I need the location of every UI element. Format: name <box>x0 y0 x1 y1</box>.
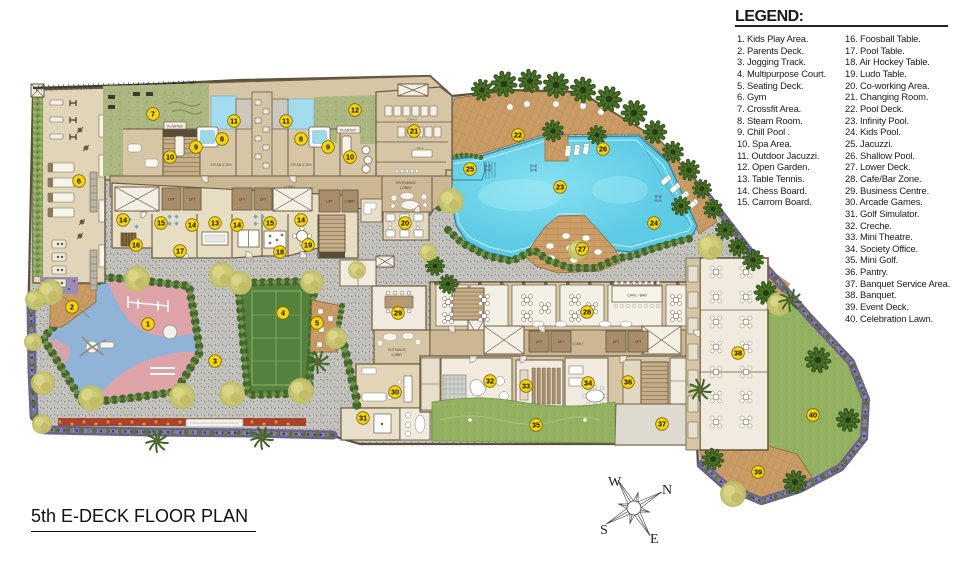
svg-text:15: 15 <box>266 219 274 228</box>
svg-text:17: 17 <box>176 247 184 256</box>
svg-text:11: 11 <box>282 117 290 126</box>
svg-text:34: 34 <box>584 379 593 388</box>
svg-text:18: 18 <box>276 248 284 257</box>
svg-text:ENTRANCE: ENTRANCE <box>388 348 406 352</box>
svg-text:3: 3 <box>213 357 217 366</box>
svg-text:11: 11 <box>230 117 238 126</box>
svg-text:LIFT: LIFT <box>635 340 642 344</box>
svg-text:32: 32 <box>486 377 494 386</box>
svg-text:LOBBY: LOBBY <box>400 186 413 190</box>
svg-text:22: 22 <box>514 131 522 140</box>
svg-text:14: 14 <box>119 216 128 225</box>
svg-text:LIFT: LIFT <box>239 198 246 202</box>
svg-text:26: 26 <box>599 145 607 154</box>
svg-text:STEAM & SPA: STEAM & SPA <box>210 163 232 167</box>
svg-text:S: S <box>600 523 608 538</box>
svg-text:10: 10 <box>166 153 174 162</box>
svg-text:LOBBY: LOBBY <box>572 342 584 346</box>
svg-text:LIFT: LIFT <box>613 340 620 344</box>
svg-text:FEMALE: FEMALE <box>407 118 418 122</box>
svg-text:W: W <box>608 475 622 490</box>
svg-text:CAFE / BAR: CAFE / BAR <box>627 294 647 298</box>
svg-text:15: 15 <box>157 219 165 228</box>
svg-text:31: 31 <box>359 414 367 423</box>
svg-text:27: 27 <box>578 245 586 254</box>
svg-text:38: 38 <box>734 349 742 358</box>
svg-text:E: E <box>650 532 659 547</box>
svg-text:LOBBY: LOBBY <box>345 200 357 204</box>
svg-text:2: 2 <box>70 303 74 312</box>
svg-text:37: 37 <box>658 420 666 429</box>
svg-text:8: 8 <box>299 135 303 144</box>
svg-text:ENTRANCE: ENTRANCE <box>396 181 416 185</box>
svg-text:35: 35 <box>532 421 540 430</box>
svg-text:8: 8 <box>220 135 224 144</box>
svg-text:28: 28 <box>583 308 591 317</box>
svg-text:14: 14 <box>297 216 306 225</box>
svg-text:STEAM & SPA: STEAM & SPA <box>290 163 312 167</box>
svg-text:1: 1 <box>146 320 150 329</box>
svg-text:36: 36 <box>624 378 632 387</box>
svg-text:30: 30 <box>391 388 399 397</box>
svg-text:40: 40 <box>809 411 817 420</box>
svg-text:19: 19 <box>304 241 312 250</box>
svg-text:LIFT: LIFT <box>260 198 267 202</box>
svg-text:LOBBY: LOBBY <box>392 353 404 357</box>
svg-text:23: 23 <box>556 183 564 192</box>
svg-text:9: 9 <box>194 143 198 152</box>
svg-text:7: 7 <box>151 110 155 119</box>
svg-text:N: N <box>662 483 672 498</box>
svg-text:LIFT: LIFT <box>326 200 333 204</box>
svg-text:16: 16 <box>132 241 140 250</box>
svg-text:LIFT: LIFT <box>189 198 196 202</box>
svg-text:14: 14 <box>233 221 242 230</box>
svg-text:LIFT: LIFT <box>168 198 175 202</box>
svg-text:9: 9 <box>326 143 330 152</box>
svg-text:24: 24 <box>650 219 659 228</box>
svg-text:14: 14 <box>188 221 197 230</box>
svg-text:13: 13 <box>211 219 219 228</box>
svg-text:PLANTER: PLANTER <box>340 128 356 132</box>
svg-text:21: 21 <box>410 127 418 136</box>
svg-text:33: 33 <box>522 382 530 391</box>
svg-text:MALE: MALE <box>416 146 423 150</box>
svg-text:20: 20 <box>401 219 409 228</box>
svg-text:12: 12 <box>351 106 359 115</box>
svg-text:LIFT: LIFT <box>536 340 543 344</box>
svg-text:29: 29 <box>394 309 402 318</box>
svg-text:5: 5 <box>315 319 319 328</box>
svg-text:10: 10 <box>346 153 354 162</box>
svg-text:PLANTER: PLANTER <box>167 124 183 128</box>
svg-text:39: 39 <box>754 468 762 477</box>
svg-text:LIFT: LIFT <box>558 340 565 344</box>
svg-text:25: 25 <box>466 165 474 174</box>
svg-text:6: 6 <box>77 177 81 186</box>
